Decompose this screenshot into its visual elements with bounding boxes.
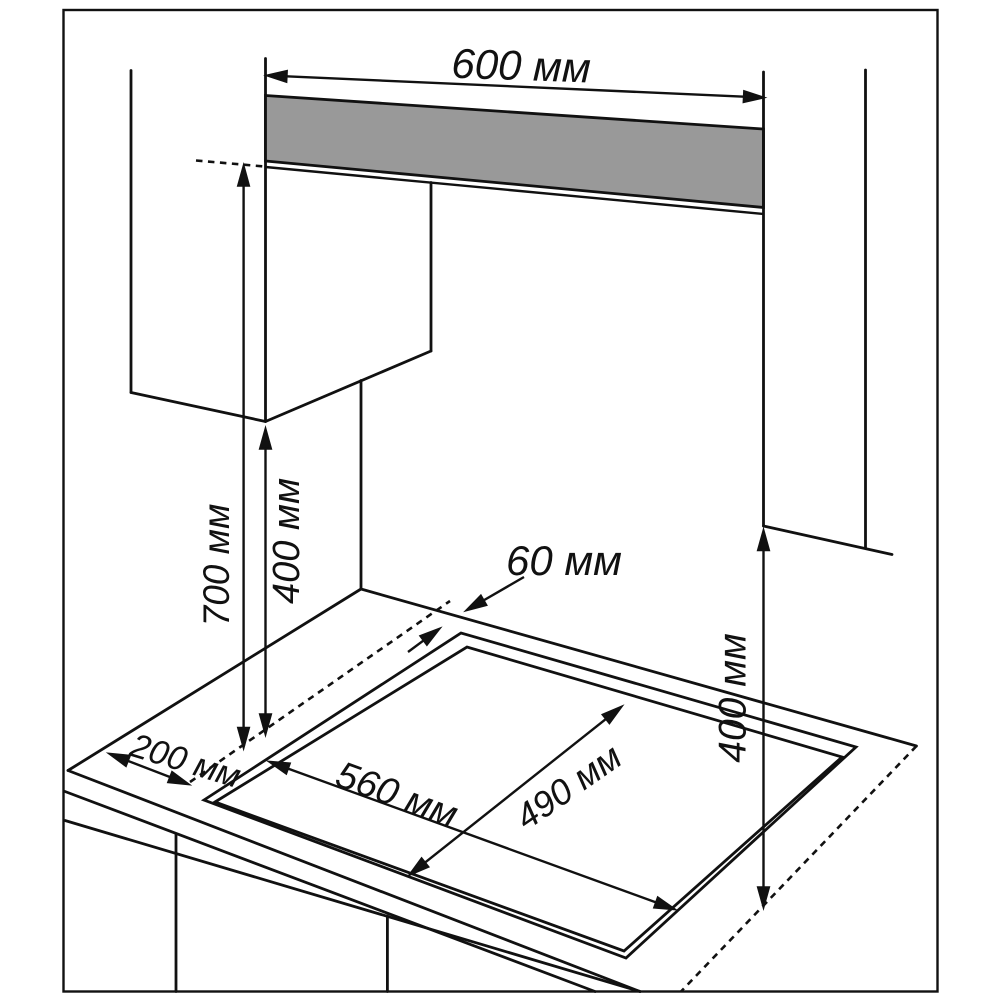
svg-text:400 мм: 400 мм <box>711 633 754 762</box>
svg-text:400 мм: 400 мм <box>266 478 308 604</box>
svg-text:600 мм: 600 мм <box>451 40 592 92</box>
svg-text:60 мм: 60 мм <box>506 537 622 584</box>
svg-text:700 мм: 700 мм <box>196 504 237 627</box>
